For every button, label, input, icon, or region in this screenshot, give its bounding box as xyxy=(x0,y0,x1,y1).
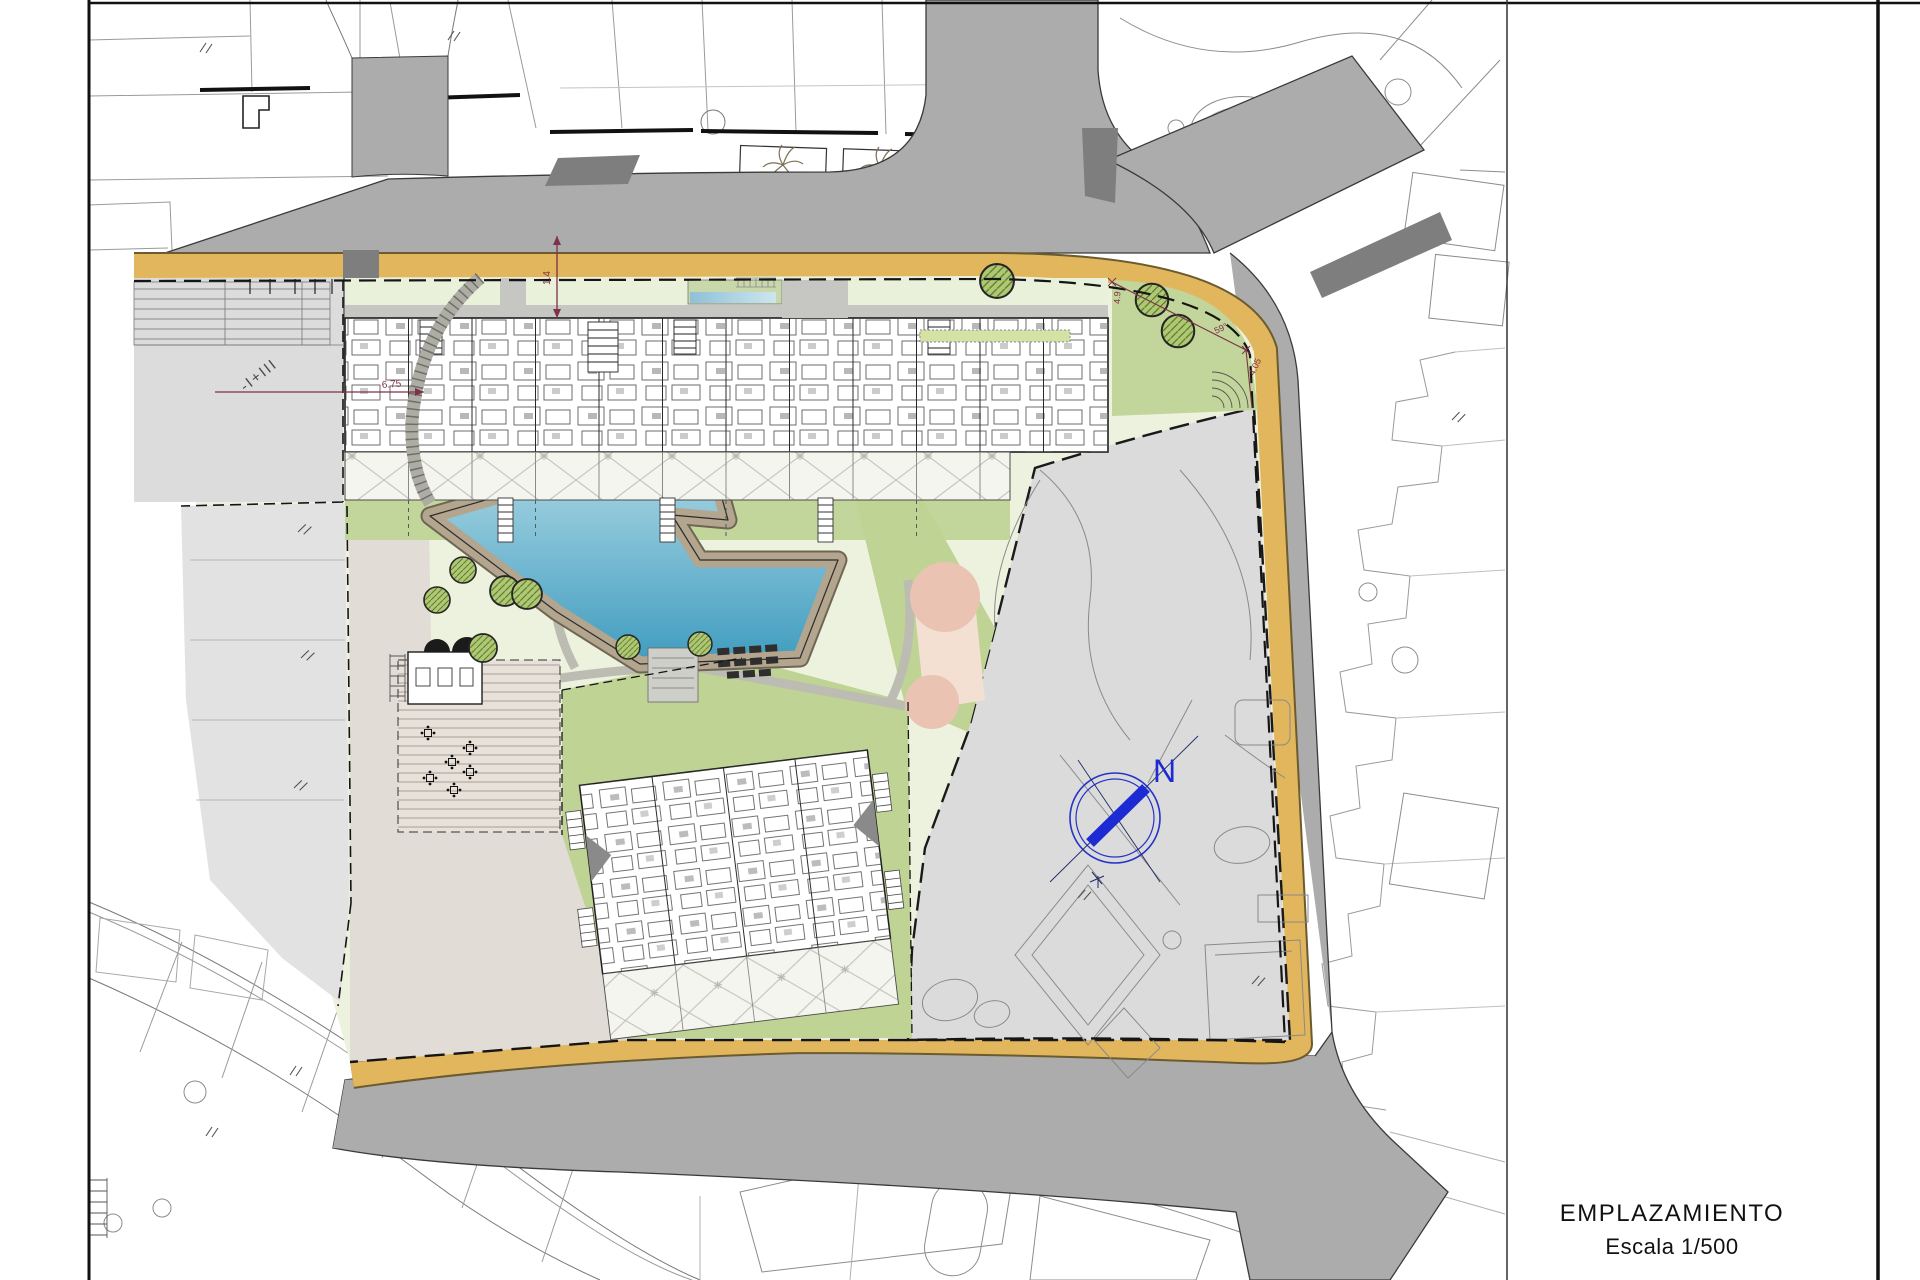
south-building xyxy=(563,748,916,1042)
site-plan-drawing: -I+III xyxy=(0,0,1920,1280)
dim-east: 4.9 xyxy=(1112,291,1122,304)
drawing-sheet: -I+III xyxy=(0,0,1920,1280)
terraces xyxy=(345,452,1010,500)
dim-setback: 1.4 xyxy=(542,271,553,285)
road-stub-topleft xyxy=(352,56,448,177)
title-block: EMPLAZAMIENTO Escala 1/500 xyxy=(1512,1200,1832,1260)
lap-pool xyxy=(690,292,776,303)
drawing-scale: Escala 1/500 xyxy=(1512,1234,1832,1260)
drawing-title: EMPLAZAMIENTO xyxy=(1512,1200,1832,1228)
dim-width: 6.75 xyxy=(381,379,402,391)
terrace-bar-area xyxy=(390,637,560,832)
north-label: N xyxy=(1153,753,1176,789)
garden-walkway xyxy=(648,648,698,702)
